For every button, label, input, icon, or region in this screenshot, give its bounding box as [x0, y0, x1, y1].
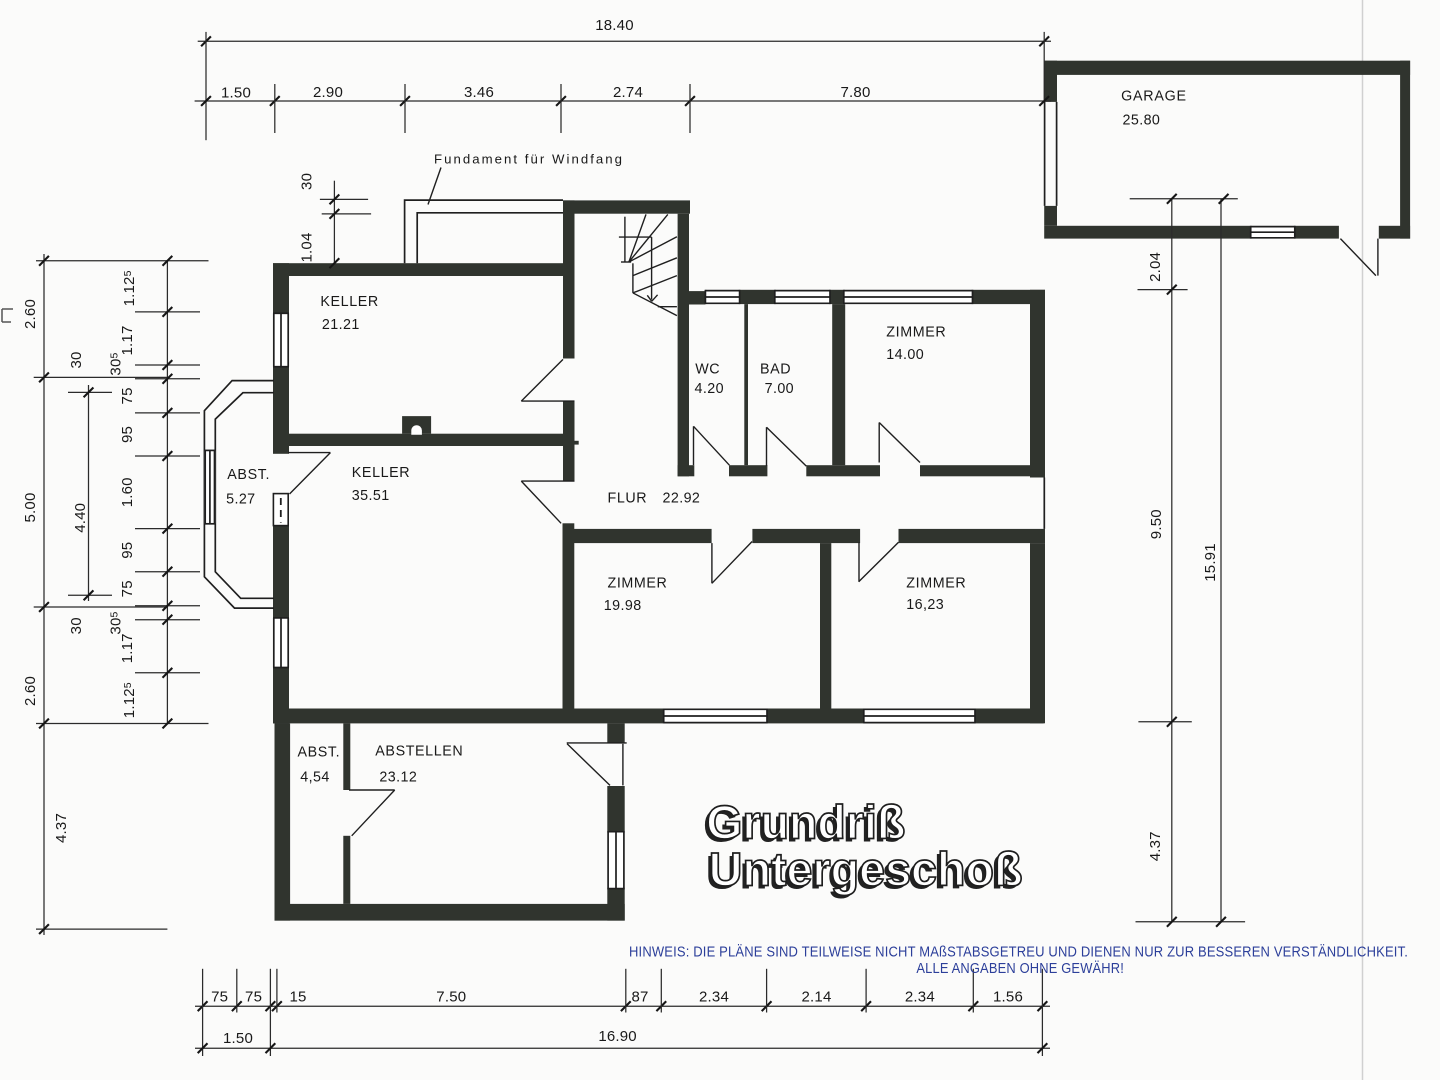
svg-text:2.60: 2.60 — [22, 299, 39, 329]
svg-text:ZIMMER: ZIMMER — [608, 576, 668, 592]
svg-text:30: 30 — [68, 351, 85, 368]
svg-text:3.46: 3.46 — [464, 84, 494, 101]
svg-text:ALLE ANGABEN OHNE GEWÄHR!: ALLE ANGABEN OHNE GEWÄHR! — [916, 960, 1124, 977]
svg-text:ABST.: ABST. — [298, 745, 341, 761]
svg-text:7.80: 7.80 — [841, 84, 871, 101]
svg-text:4.37: 4.37 — [1147, 831, 1164, 861]
svg-text:18.40: 18.40 — [595, 17, 634, 34]
svg-text:2.04: 2.04 — [1147, 252, 1164, 282]
svg-text:4,54: 4,54 — [300, 770, 329, 786]
svg-text:Grundriß: Grundriß — [706, 796, 905, 849]
svg-text:ZIMMER: ZIMMER — [886, 324, 946, 340]
svg-text:75: 75 — [211, 989, 228, 1006]
svg-text:GARAGE: GARAGE — [1121, 89, 1187, 105]
svg-text:2.74: 2.74 — [613, 84, 643, 101]
svg-text:BAD: BAD — [760, 362, 791, 378]
svg-text:16.90: 16.90 — [598, 1028, 637, 1045]
svg-text:Untergeschoß: Untergeschoß — [709, 843, 1023, 896]
svg-text:7.50: 7.50 — [436, 989, 466, 1006]
svg-text:KELLER: KELLER — [320, 294, 378, 310]
svg-text:FLUR: FLUR — [608, 491, 648, 507]
svg-text:5.27: 5.27 — [226, 491, 255, 507]
svg-text:2.14: 2.14 — [802, 989, 832, 1006]
svg-text:1.50: 1.50 — [221, 85, 251, 102]
svg-text:5.00: 5.00 — [22, 493, 39, 523]
svg-text:19.98: 19.98 — [604, 598, 642, 614]
svg-text:75: 75 — [245, 989, 262, 1006]
svg-text:21.21: 21.21 — [322, 317, 360, 333]
svg-text:30: 30 — [68, 617, 85, 634]
svg-text:1.56: 1.56 — [993, 989, 1023, 1006]
svg-text:ABSTELLEN: ABSTELLEN — [375, 743, 463, 759]
svg-text:75: 75 — [119, 387, 136, 404]
svg-text:HINWEIS: DIE PLÄNE SIND TEILWE: HINWEIS: DIE PLÄNE SIND TEILWEISE NICHT … — [629, 944, 1408, 961]
svg-text:4.20: 4.20 — [695, 381, 724, 397]
svg-text:WC: WC — [695, 362, 720, 378]
svg-text:2.34: 2.34 — [699, 989, 729, 1006]
svg-text:87: 87 — [631, 989, 648, 1006]
svg-text:22.92: 22.92 — [663, 491, 701, 507]
svg-text:95: 95 — [119, 426, 136, 443]
svg-text:23.12: 23.12 — [379, 770, 417, 786]
svg-text:16,23: 16,23 — [906, 597, 944, 613]
svg-text:2.90: 2.90 — [313, 84, 343, 101]
svg-text:9.50: 9.50 — [1148, 509, 1165, 539]
svg-text:1.17: 1.17 — [119, 326, 136, 356]
svg-text:1.17: 1.17 — [119, 633, 136, 663]
svg-text:15: 15 — [289, 989, 306, 1006]
svg-text:1.04: 1.04 — [299, 233, 316, 263]
svg-text:1.60: 1.60 — [119, 477, 136, 507]
svg-text:7.00: 7.00 — [765, 381, 794, 397]
svg-text:KELLER: KELLER — [352, 465, 410, 481]
svg-text:15.91: 15.91 — [1202, 543, 1219, 582]
svg-text:Fundament für Windfang: Fundament für Windfang — [434, 152, 622, 167]
svg-text:4.40: 4.40 — [72, 503, 89, 533]
svg-text:75: 75 — [119, 580, 136, 597]
svg-text:ABST.: ABST. — [227, 467, 270, 483]
svg-text:ZIMMER: ZIMMER — [906, 576, 966, 592]
svg-text:2.34: 2.34 — [905, 989, 935, 1006]
svg-text:2.60: 2.60 — [22, 676, 39, 706]
svg-text:14.00: 14.00 — [886, 347, 924, 363]
svg-text:1.50: 1.50 — [223, 1030, 253, 1047]
svg-text:30: 30 — [299, 173, 316, 190]
svg-text:35.51: 35.51 — [352, 488, 390, 504]
svg-text:95: 95 — [119, 542, 136, 559]
svg-text:4.37: 4.37 — [53, 813, 70, 843]
svg-text:25.80: 25.80 — [1123, 113, 1161, 129]
